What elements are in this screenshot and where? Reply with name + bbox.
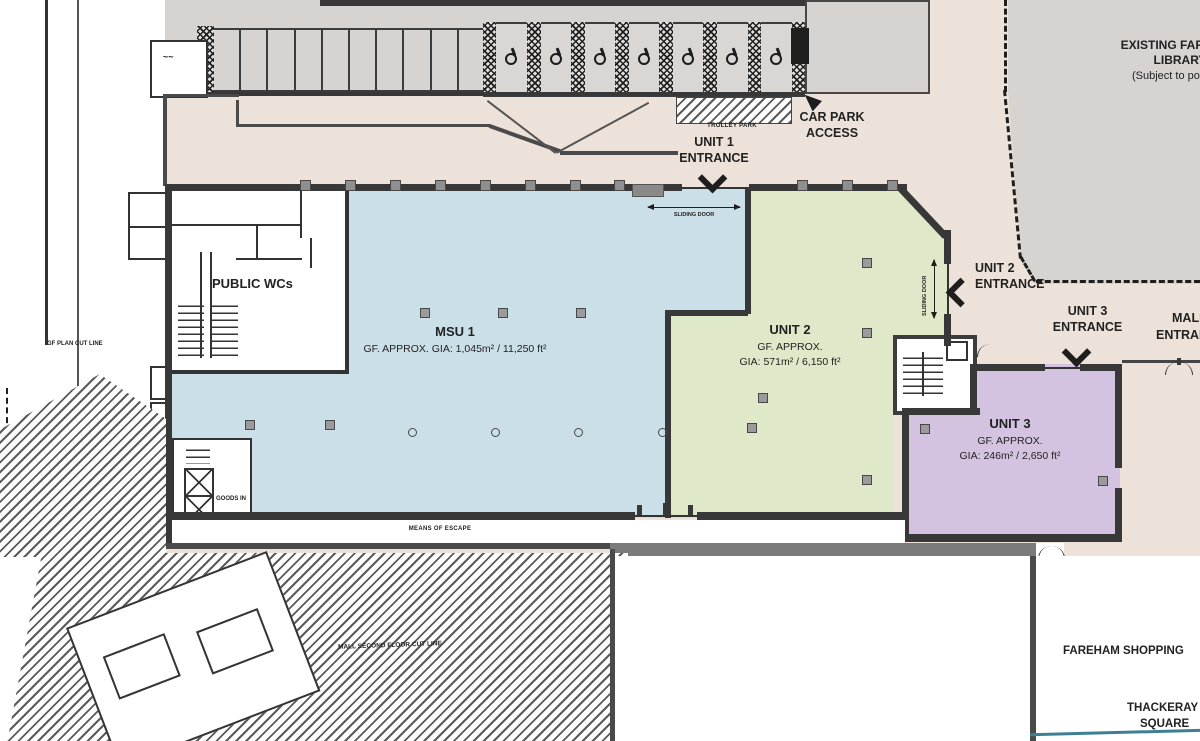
kiosk-building [150,40,208,98]
parking-bay [214,30,239,90]
door-stub [663,503,669,515]
column-marker [862,475,872,485]
wall-bottom [697,512,907,520]
unit1-entrance-line2: ENTRANCE [666,151,762,167]
wall-unit3-step [902,408,980,415]
trolley-bay [541,22,572,93]
unit2-area: GIA: 571m² / 6,150 ft² [710,356,870,369]
wall-tick [390,180,401,191]
plan-edge [163,94,167,186]
door-arc [1179,362,1193,375]
escape-corridor [172,520,905,544]
door-stub [1177,358,1181,365]
column-marker [862,258,872,268]
thackeray-label-1: THACKERAY [1127,701,1198,715]
trolley-icon [770,48,782,65]
partition [170,224,302,226]
unit2-label: UNIT 2 GF. APPROX. GIA: 571m² / 6,150 ft… [710,322,870,370]
road-line [77,0,79,398]
entrance-pier [632,184,664,197]
trolley-icon [505,48,517,65]
column-marker [245,420,255,430]
sliding-door-arrow [934,260,935,318]
column-marker [420,308,430,318]
bottom-room [615,556,1033,741]
wall-tick [842,180,853,191]
thackeray-label-2: SQUARE [1140,717,1189,731]
unit2-approx: GF. APPROX. [710,341,870,354]
forecourt-wall [236,100,239,127]
wall-tick [435,180,446,191]
wall-tick [345,180,356,191]
column-marker [576,308,586,318]
unit3-entrance-line1: UNIT 3 [1040,304,1135,320]
library-line1: EXISTING FAREHAM [1050,38,1200,53]
bay-divider [483,22,496,93]
sliding-door-arrow [648,207,740,208]
trolley-icon [638,48,650,65]
wall-top [749,184,907,191]
library-label: EXISTING FAREHAM LIBRARY (Subject to pos… [1050,38,1200,84]
wall-tick [525,180,536,191]
kerb-line [197,92,805,96]
msu1-name: MSU 1 [330,324,580,340]
parking-bay [294,30,321,90]
kiosk-symbol: ~~ [163,52,174,63]
trolley-bay [629,22,660,93]
wall-tick [614,180,625,191]
wall-unit3-top [973,364,1045,371]
column-marker [1098,476,1108,486]
gf-plan-cut-line-label: GF PLAN CUT LINE [47,341,103,349]
unit2-entrance-arrow [946,278,976,308]
trolley-park-label: TROLLEY PARK [672,123,792,131]
unit2-name: UNIT 2 [710,322,870,338]
wall-unit3-bottom [902,534,1122,542]
unit3-name: UNIT 3 [930,416,1090,432]
bay-divider [527,22,540,93]
bay-divider [571,22,584,93]
car-park-line1: CAR PARK [780,110,884,126]
parking-bay [430,30,457,90]
bay-divider [659,22,672,93]
column-marker [498,308,508,318]
msu1-area: GF. APPROX. GIA: 1,045m² / 11,250 ft² [330,343,580,356]
wall-right-unit2 [944,314,951,346]
unit3-entrance-line2: ENTRANCE [1040,320,1135,336]
trolley-park-area [676,97,792,124]
floor-plan: GF PLAN CUT LINE ~~ EXISTING FAREHAM LIB… [0,0,1200,741]
top-building-edge [320,0,808,6]
service-building [805,0,930,94]
partition [256,224,258,260]
plan-edge [165,94,239,97]
unit3-approx: GF. APPROX. [930,435,1090,448]
column-marker [862,328,872,338]
trolley-icon [726,48,738,65]
msu1-label: MSU 1 GF. APPROX. GIA: 1,045m² / 11,250 … [330,324,580,356]
door-stub [637,505,642,515]
outbuilding-room [103,633,181,700]
fareham-shopping-label: FAREHAM SHOPPING [1063,644,1184,658]
wall-msu1-unit2 [745,188,751,314]
mall-link-line [1122,360,1200,363]
unit2-entrance-label: UNIT 2 ENTRANCE [975,261,1044,292]
car-park-bays [214,28,484,92]
goods-lift [184,468,214,497]
column-marker [920,424,930,434]
partition [300,188,302,238]
column-marker [758,393,768,403]
trolley-bay [717,22,748,93]
trolley-bay [673,22,704,93]
unit2-entrance-line1: UNIT 2 [975,261,1044,277]
library-line2: LIBRARY [1050,53,1200,68]
sliding-door-note-vertical: SLIDING DOOR [922,254,940,318]
bottom-room-wall [610,549,615,741]
wall-msu1-unit2 [665,310,671,518]
boundary-dash-line [1004,0,1007,92]
parking-bay [375,30,402,90]
mall-entrance-label-1: MALL [1172,311,1200,327]
public-wcs-label: PUBLIC WCs [212,276,293,292]
sliding-door-label-right: SLIDING DOOR [922,276,929,316]
parking-bay [239,30,266,90]
trolley-icon [682,48,694,65]
stairs [212,300,238,360]
stair-rail [922,352,924,396]
wall-tick [887,180,898,191]
partition [310,238,312,268]
forecourt-wall [560,151,678,155]
unit3-area: GIA: 246m² / 2,650 ft² [930,450,1090,463]
parking-bay [457,30,484,90]
wall-left [165,184,172,546]
car-park-access-label: CAR PARK ACCESS [780,110,884,141]
library-line3: (Subject to possible [1050,70,1200,84]
corridor-south-line [165,543,615,549]
road-line [45,0,48,345]
goods-in-text: GOODS IN [216,496,246,502]
unit2-entrance-line2: ENTRANCE [975,277,1044,293]
wall-msu1-unit2 [668,310,748,316]
dark-block [791,28,809,64]
mall-entrance-label-2: ENTRANCE [1156,328,1200,344]
door-line [635,515,697,517]
column-marker [325,420,335,430]
parking-bay [402,30,429,90]
wall-tick [797,180,808,191]
trolley-bay [496,22,527,93]
wall-unit3-right [1115,364,1122,468]
unit3-entrance-arrow [1062,338,1092,368]
trolley-bay [761,22,792,93]
boundary-dash-line [1036,280,1200,283]
unit3-label: UNIT 3 GF. APPROX. GIA: 246m² / 2,650 ft… [930,416,1090,464]
sliding-door-label-top: SLIDING DOOR [648,212,740,219]
parking-bay [266,30,293,90]
door-stub [688,505,693,515]
column-marker [658,428,667,437]
goods-in-label: GOODS IN [212,496,250,504]
parking-bay [321,30,348,90]
bay-divider [748,22,761,93]
wall-tick [480,180,491,191]
parking-bay [348,30,375,90]
trolley-bay [585,22,616,93]
unit1-entrance-line1: UNIT 1 [666,135,762,151]
trolley-icon [594,48,606,65]
wall-right-unit2 [944,230,951,264]
unit3-entrance-label: UNIT 3 ENTRANCE [1040,304,1135,335]
wall-bottom [165,512,635,520]
column-marker [491,428,500,437]
column-marker [574,428,583,437]
wall-top [664,184,682,191]
trolley-icon [550,48,562,65]
door-arc [977,344,991,357]
road-mark [556,102,649,154]
wall-unit3-left-up [970,364,977,414]
wall-tick [570,180,581,191]
outbuilding-room [196,608,274,675]
stairs [178,300,204,360]
means-of-escape-label: MEANS OF ESCAPE [360,526,520,534]
car-park-line2: ACCESS [780,126,884,142]
column-marker [408,428,417,437]
wall-tick [300,180,311,191]
bay-divider [703,22,716,93]
column-marker [747,423,757,433]
forecourt-wall [238,124,490,127]
trolley-bay-row [483,22,805,97]
unit1-entrance-label: UNIT 1 ENTRANCE [666,135,762,166]
stairs [186,444,210,464]
partition [236,258,302,260]
bay-divider [615,22,628,93]
